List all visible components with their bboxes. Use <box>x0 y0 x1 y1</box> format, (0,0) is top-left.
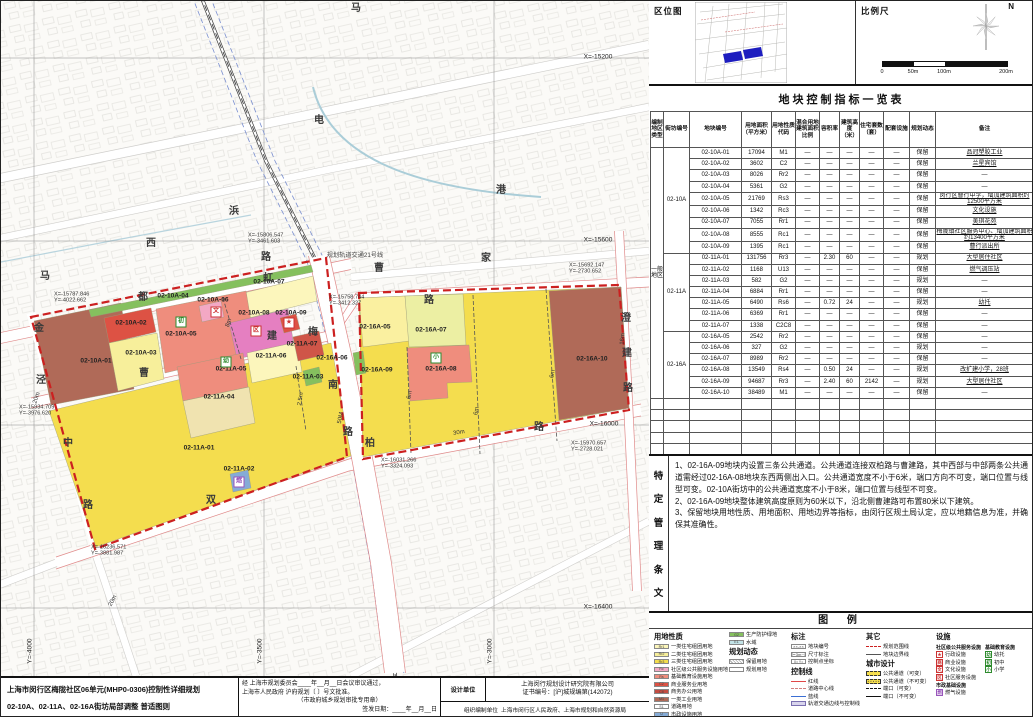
legend-item-label: 道路用地 <box>671 703 692 710</box>
column-header: 建筑高度（米） <box>840 112 860 148</box>
legend-item-label: 社区服务设施 <box>945 674 976 681</box>
cell: 8989 <box>742 354 772 365</box>
empty-cell <box>690 410 742 421</box>
legend-swatch <box>866 654 881 655</box>
cell: 规划 <box>910 365 936 376</box>
empty-cell <box>860 410 884 421</box>
legend-swatch <box>866 671 881 676</box>
legend-heading: 其它 <box>866 632 936 642</box>
cell: — <box>820 264 840 275</box>
legend-swatch: X= Y= <box>791 659 806 664</box>
legend-item-label: 市政设施用地 <box>671 711 702 717</box>
cell: 美琪花苑 <box>936 217 1033 228</box>
compass-rose-icon <box>966 3 1006 51</box>
empty-cell <box>796 432 820 443</box>
cell: — <box>820 320 840 331</box>
legend-item: 文文化设施 <box>936 666 981 674</box>
legend-swatch: ⊢3m⊣ <box>791 652 806 657</box>
scale-bar <box>882 61 1008 67</box>
design-unit-label: 设计单位 <box>441 678 486 701</box>
cell: — <box>796 217 820 228</box>
table-row: 02-16A-06327G2—————规划— <box>651 343 1033 354</box>
empty-cell <box>651 443 664 454</box>
cell: 保留 <box>910 309 936 320</box>
cell: — <box>820 287 840 298</box>
cell: — <box>840 320 860 331</box>
empty-cell <box>772 398 796 409</box>
cell: 0.72 <box>820 298 840 309</box>
column-header: 容积率 <box>820 112 840 148</box>
cell: — <box>820 331 840 342</box>
cell: — <box>796 331 820 342</box>
cell: 02-10A-05 <box>690 192 742 206</box>
legend-item-label: 公共通道（不可变） <box>883 678 930 685</box>
cell: 7055 <box>742 217 772 228</box>
map-drawing <box>1 1 649 676</box>
cell: — <box>860 287 884 298</box>
table-row: 02-10A-091395Rc1—————保留曹行派出所 <box>651 242 1033 253</box>
cell: — <box>840 387 860 398</box>
cell: 24 <box>840 298 860 309</box>
special-provisions-text: 1、02-16A-09地块内设置三条公共通道。公共通道连接双柏路与曹建路，其中西… <box>669 456 1033 611</box>
table-row: 02-16A-0994687Rr3—2.40602142—规划大型居住社区 <box>651 376 1033 387</box>
legend-item-label: 小学 <box>994 666 1004 673</box>
cell: 02-11A-05 <box>690 298 742 309</box>
cell: — <box>840 331 860 342</box>
cell: 02-11A-07 <box>690 320 742 331</box>
cell: 2.30 <box>820 253 840 264</box>
cell: — <box>936 275 1033 286</box>
cell: 文化设施 <box>936 206 1033 217</box>
special-provisions-side-label: 特定管理条文 <box>649 456 669 611</box>
cell: M1 <box>772 387 796 398</box>
location-panel: 区位图 <box>649 1 856 84</box>
cell: — <box>840 148 860 159</box>
cell: 保留 <box>910 228 936 242</box>
cell: — <box>796 365 820 376</box>
cell: Rr1 <box>772 309 796 320</box>
cell: 3602 <box>742 159 772 170</box>
cell: — <box>860 253 884 264</box>
design-unit-cell: 设计单位 上海闵行规划设计研究院有限公司 证书编号：[沪]城规编第(142072… <box>441 678 649 717</box>
cell: 02-16A-10 <box>690 387 742 398</box>
legend-swatch: Rr3 <box>654 659 669 664</box>
cell: Rr1 <box>772 287 796 298</box>
facility-subheading: 市政基础设施 <box>936 682 981 689</box>
legend-item-label: 地块边界线 <box>883 651 909 658</box>
cell: C2 <box>772 159 796 170</box>
cell: — <box>820 159 840 170</box>
table-row: 02-11A-056490Rs6—0.7224——规划幼托 <box>651 298 1033 309</box>
legend-others-urban: 其它规划范围线地块边界线城市设计公共通道（可变）公共通道（不可变）端口（可变）端… <box>866 631 936 717</box>
cell: — <box>860 242 884 253</box>
scale-tick-label: 50m <box>908 69 919 75</box>
north-label: N <box>1008 2 1014 11</box>
cell: — <box>936 181 1033 192</box>
column-header: 混合用地建筑面积比例 <box>796 112 820 148</box>
cell: 兰星宾馆 <box>936 159 1033 170</box>
indicator-table-section: 地块控制指标一览表 编制地区类型街坊编号地块编号用地面积（平方米）用地性质代码混… <box>649 86 1033 456</box>
legend-item: X= Y=控制点坐标 <box>791 658 866 666</box>
cell: 保留 <box>910 181 936 192</box>
empty-cell <box>840 398 860 409</box>
legend-item-label: 社区级公共服务设施用地 <box>671 666 728 673</box>
legend-item-label: 燃气设施 <box>945 689 966 696</box>
legend-item: 轨道交通边线与控制线 <box>791 700 866 708</box>
column-header: 街坊编号 <box>664 112 690 148</box>
legend-item-label: 水域 <box>746 639 756 646</box>
cell: 改扩建小学，28班 <box>936 365 1033 376</box>
column-header: 用地性质代码 <box>772 112 796 148</box>
legend-swatch <box>866 688 881 689</box>
cell: — <box>884 228 910 242</box>
facility-icon: 幼 <box>985 651 992 658</box>
legend-swatch: E1 <box>729 640 744 645</box>
legend-heading: 控制线 <box>791 667 866 677</box>
cell: 02-11A-01 <box>690 253 742 264</box>
cell: — <box>860 331 884 342</box>
location-title: 区位图 <box>654 5 683 17</box>
empty-cell <box>910 410 936 421</box>
cell: — <box>936 170 1033 181</box>
table-row: 02-10A-038026Rr2—————保留— <box>651 170 1033 181</box>
table-row: 02-16A-0813549Rs4—0.5024——规划改扩建小学，28班 <box>651 365 1033 376</box>
cell: — <box>840 228 860 242</box>
legend-body: 用地性质Rr1一类住宅组团用地Rr2二类住宅组团用地Rr3三类住宅组团用地Rc社… <box>649 629 1033 717</box>
cell: — <box>840 206 860 217</box>
legend-swatch <box>866 696 881 697</box>
legend-swatch <box>791 696 806 697</box>
cell: — <box>796 206 820 217</box>
legend-item-label: 行政设施 <box>945 651 966 658</box>
block-cell: 02-16A <box>664 331 690 398</box>
legend-heading: 城市设计 <box>866 659 936 669</box>
legend-heading: 用地性质 <box>654 632 729 642</box>
cell: 2542 <box>742 331 772 342</box>
education-facilities: 基础教育设施幼幼托初初中小小学 <box>985 643 1015 697</box>
legend-swatch: C2 <box>654 682 669 687</box>
legend-item: ⊢3m⊣尺寸标注 <box>791 651 866 659</box>
legend-item-label: 保留用地 <box>746 658 767 665</box>
cell: — <box>860 365 884 376</box>
empty-cell <box>742 410 772 421</box>
cell: — <box>860 148 884 159</box>
cell: C2C8 <box>772 320 796 331</box>
legend-item: ★行政设施 <box>936 651 981 659</box>
empty-cell <box>742 421 772 432</box>
facility-icon: 燃 <box>936 689 943 696</box>
cell: 1168 <box>742 264 772 275</box>
cell: — <box>820 343 840 354</box>
cell: 大型居住社区 <box>936 376 1033 387</box>
cell: Rs3 <box>772 192 796 206</box>
cell: — <box>884 192 910 206</box>
empty-cell <box>796 443 820 454</box>
cell: 6490 <box>742 298 772 309</box>
column-header: 备注 <box>936 112 1033 148</box>
cell: Rs4 <box>772 365 796 376</box>
empty-cell <box>664 443 690 454</box>
cell: — <box>796 320 820 331</box>
cell: 8026 <box>742 170 772 181</box>
location-inset-map <box>695 2 787 83</box>
empty-cell <box>772 421 796 432</box>
facility-icon: 初 <box>985 659 992 666</box>
community-facilities: 社区级公共服务设施★行政设施商商业设施文文化设施区社区服务设施市政基础设施燃燃气… <box>936 643 981 697</box>
cell: — <box>820 275 840 286</box>
cell: — <box>820 217 840 228</box>
cell: — <box>936 287 1033 298</box>
cell: 8555 <box>742 228 772 242</box>
cell: 幼托 <box>936 298 1033 309</box>
cell: — <box>820 192 840 206</box>
cell: — <box>936 343 1033 354</box>
table-header-row: 编制地区类型街坊编号地块编号用地面积（平方米）用地性质代码混合用地建筑面积比例容… <box>651 112 1033 148</box>
empty-cell <box>772 432 796 443</box>
cell: — <box>796 181 820 192</box>
facility-subheading: 基础教育设施 <box>985 644 1015 651</box>
empty-cell <box>742 432 772 443</box>
cell: 保留 <box>910 192 936 206</box>
legend-swatch: Rr1 <box>654 644 669 649</box>
approval-line1: 经 上海市规划委员会____年__月__日会议审议通过， <box>242 680 437 689</box>
empty-cell <box>664 432 690 443</box>
cell: Rc1 <box>772 242 796 253</box>
empty-cell <box>860 432 884 443</box>
column-header: 住宅套数（套） <box>860 112 884 148</box>
cell: 60 <box>840 376 860 387</box>
table-row: 02-10A-023602C2—————保留兰星宾馆 <box>651 159 1033 170</box>
cell: 02-10A-04 <box>690 181 742 192</box>
empty-cell <box>884 398 910 409</box>
cell: — <box>884 206 910 217</box>
cell: 1395 <box>742 242 772 253</box>
empty-cell <box>820 443 840 454</box>
cell: — <box>796 242 820 253</box>
cell: — <box>860 170 884 181</box>
project-title-cell: 上海市闵行区梅陇社区06单元(MHP0-0306)控制性详细规划 02-10A、… <box>1 678 239 717</box>
legend-item: Rc社区级公共服务设施用地 <box>654 666 729 674</box>
cell: — <box>860 206 884 217</box>
table-row: 02-10A-0521769Rs3—————保留闵行区曹行中学，增加建筑面积约1… <box>651 192 1033 206</box>
legend-swatch <box>866 679 881 684</box>
cell: — <box>820 309 840 320</box>
side-label-char: 管 <box>654 515 664 529</box>
cell: Rc1 <box>772 228 796 242</box>
empty-cell <box>664 421 690 432</box>
cell: — <box>884 148 910 159</box>
cell: Rs6 <box>772 298 796 309</box>
title-block: 上海市闵行区梅陇社区06单元(MHP0-0306)控制性详细规划 02-10A、… <box>1 676 649 717</box>
table-row: 02-16A02-16A-052542Rr2—————保留— <box>651 331 1033 342</box>
info-panel: 区位图 <box>649 1 1033 717</box>
cell: — <box>884 365 910 376</box>
cell: — <box>860 192 884 206</box>
legend-item-label: 端口（可变） <box>883 685 914 692</box>
cell: — <box>884 309 910 320</box>
legend-swatch: Rc <box>654 667 669 672</box>
scale-bar-ticks: 050m100m200m <box>882 69 1006 76</box>
provision-item: 1、02-16A-09地块内设置三条公共通道。公共通道连接双柏路与曹建路，其中西… <box>675 460 1028 496</box>
area-type-cell: 一般地区 <box>651 148 664 399</box>
cell: — <box>820 387 840 398</box>
empty-cell <box>651 432 664 443</box>
cell: — <box>796 354 820 365</box>
cell: — <box>820 170 840 181</box>
empty-cell <box>840 432 860 443</box>
empty-cell <box>651 398 664 409</box>
cell: Rr2 <box>772 331 796 342</box>
legend-item-label: 控制点坐标 <box>808 658 834 665</box>
legend-item-label: 初中 <box>994 659 1004 666</box>
cell: — <box>840 170 860 181</box>
table-title: 地块控制指标一览表 <box>649 91 1033 107</box>
cell: 保留 <box>910 242 936 253</box>
empty-cell <box>820 410 840 421</box>
cell: 燃气调压站 <box>936 264 1033 275</box>
cell: 闵行区曹行中学，增加建筑面积约12500平方米 <box>936 192 1033 206</box>
empty-cell <box>690 432 742 443</box>
cell: — <box>840 264 860 275</box>
legend-swatch <box>791 701 806 706</box>
cell: — <box>860 275 884 286</box>
org-label: 组织编制单位 <box>464 705 498 714</box>
cell: 02-10A-07 <box>690 217 742 228</box>
empty-cell <box>884 443 910 454</box>
legend-item-label: 商业服务业用地 <box>671 681 707 688</box>
cell: 6884 <box>742 287 772 298</box>
empty-cell <box>664 398 690 409</box>
cell: — <box>884 217 910 228</box>
cell: 规划 <box>910 275 936 286</box>
legend-swatch: U <box>654 712 669 717</box>
cell: — <box>796 192 820 206</box>
cell: — <box>936 354 1033 365</box>
cell: 13549 <box>742 365 772 376</box>
cell: 规划 <box>910 343 936 354</box>
legend-item-label: 尺寸标注 <box>808 651 829 658</box>
empty-cell <box>820 398 840 409</box>
legend-item: Rr1一类住宅组团用地 <box>654 643 729 651</box>
legend-item: 蓝线 <box>791 693 866 701</box>
legend-item: 公共通道（可变） <box>866 670 936 678</box>
cell: — <box>796 343 820 354</box>
empty-cell <box>690 443 742 454</box>
cell: 2142 <box>860 376 884 387</box>
side-label-char: 文 <box>654 585 664 599</box>
cell: 6369 <box>742 309 772 320</box>
legend-item-label: 商务办公用地 <box>671 688 702 695</box>
column-header: 编制地区类型 <box>651 112 664 148</box>
project-title-line2: 02-10A、02-11A、02-16A街坊局部调整 普适图则 <box>7 701 238 712</box>
block-cell: 02-10A <box>664 148 690 254</box>
legend-item-label: 端口（不可变） <box>883 693 919 700</box>
cell: — <box>936 331 1033 342</box>
plan-sheet: 02-10A-0102-10A-0202-10A-0302-10A-0402-1… <box>0 0 1033 717</box>
column-header: 配套设施 <box>884 112 910 148</box>
legend-item-label: 规划范围线 <box>883 643 909 650</box>
legend-item-label: 公共通道（可变） <box>883 670 925 677</box>
legend-item: 规划用地 <box>729 666 791 674</box>
cell: 5361 <box>742 181 772 192</box>
cell: 02-10A-09 <box>690 242 742 253</box>
empty-cell <box>690 398 742 409</box>
empty-cell <box>772 443 796 454</box>
legend-item-label: 规划用地 <box>746 666 767 673</box>
legend-item-label: 道路中心线 <box>808 685 834 692</box>
cell: — <box>936 320 1033 331</box>
cell: — <box>884 159 910 170</box>
table-row: 02-11A-071338C2C8—————保留— <box>651 320 1033 331</box>
legend-swatch: M1 <box>654 697 669 702</box>
cell: Rr3 <box>772 376 796 387</box>
legend-item: 端口（可变） <box>866 685 936 693</box>
cell: Rr2 <box>772 354 796 365</box>
legend-item-label: 生产防护绿地 <box>746 631 777 638</box>
cell: G2 <box>772 181 796 192</box>
cell: — <box>840 343 860 354</box>
cell: — <box>796 298 820 309</box>
legend-swatch: Rr2 <box>654 652 669 657</box>
empty-cell <box>860 421 884 432</box>
cell: M1 <box>772 148 796 159</box>
legend-item: C8商务办公用地 <box>654 688 729 696</box>
scale-panel: 比例尺 N <box>856 1 1033 84</box>
empty-cell <box>936 432 1033 443</box>
column-header: 地块编号 <box>690 112 742 148</box>
cell: — <box>796 287 820 298</box>
cell: — <box>860 298 884 309</box>
cell: 02-16A-05 <box>690 331 742 342</box>
cell: — <box>884 376 910 387</box>
facility-icon: 文 <box>936 666 943 673</box>
legend-item-label: 二类住宅组团用地 <box>671 651 713 658</box>
cell: — <box>796 264 820 275</box>
legend-swatch: S1 <box>654 704 669 709</box>
cell: 02-10A-08 <box>690 228 742 242</box>
facility-icon: ★ <box>936 651 943 658</box>
cell: 保留 <box>910 320 936 331</box>
legend-item: S1道路用地 <box>654 703 729 711</box>
legend-item: 红线 <box>791 678 866 686</box>
legend-facilities: 设施社区级公共服务设施★行政设施商商业设施文文化设施区社区服务设施市政基础设施燃… <box>936 631 1032 717</box>
cell: 02-16A-09 <box>690 376 742 387</box>
cell: — <box>796 309 820 320</box>
cell: — <box>884 343 910 354</box>
cell: — <box>884 275 910 286</box>
cell: — <box>884 298 910 309</box>
empty-cell <box>910 432 936 443</box>
cell: 94687 <box>742 376 772 387</box>
cell: 02-10A-03 <box>690 170 742 181</box>
facility-icon: 小 <box>985 666 992 673</box>
legend-item: 保留用地 <box>729 658 791 666</box>
cell: 保留 <box>910 148 936 159</box>
cell: — <box>840 159 860 170</box>
master-plan-map: 02-10A-0102-10A-0202-10A-0302-10A-0402-1… <box>1 1 649 676</box>
table-row: 02-16A-1038489M1—————保留— <box>651 387 1033 398</box>
legend-dynamics: G2生产防护绿地E1水域规划动态保留用地规划用地 <box>729 631 791 717</box>
empty-row <box>651 398 1033 409</box>
legend-item: C2商业服务业用地 <box>654 681 729 689</box>
cell: 规划 <box>910 376 936 387</box>
cell: 02-11A-04 <box>690 287 742 298</box>
cell: — <box>884 170 910 181</box>
cell: 02-10A-06 <box>690 206 742 217</box>
cell: 1342 <box>742 206 772 217</box>
cell: 02-10A-02 <box>690 159 742 170</box>
cell: U13 <box>772 264 796 275</box>
